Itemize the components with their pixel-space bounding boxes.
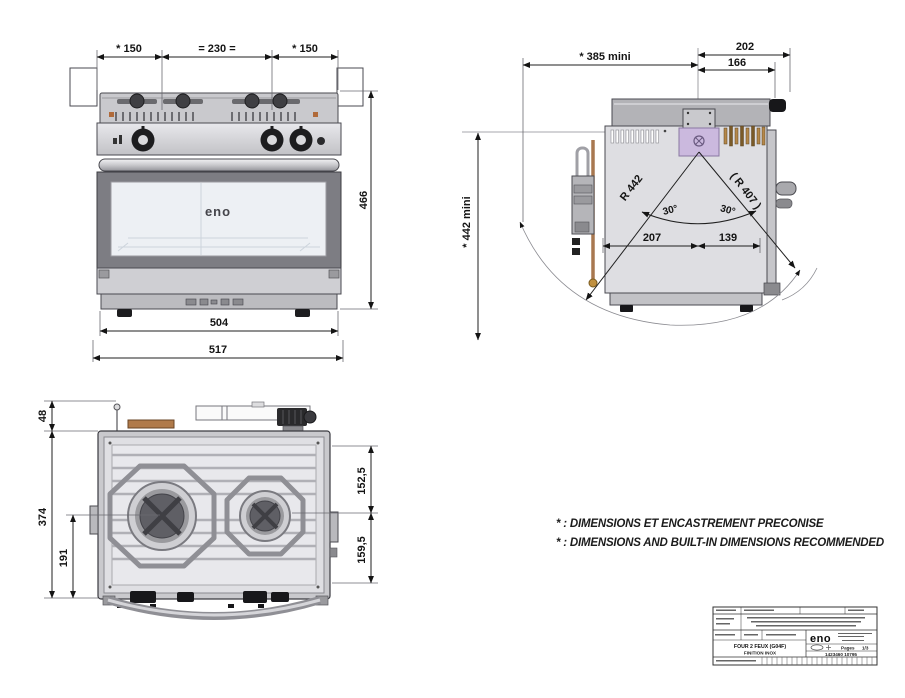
title-block-brand-logo: eno: [810, 633, 831, 645]
side-cylinder-fitting: [776, 182, 796, 195]
swing-arc-rear: [782, 268, 817, 300]
title-block: FOUR 2 FEUX (G04F) FINITION INOX eno Pag…: [713, 607, 877, 665]
technical-drawing-page: eno * 150 = 230 = * 150 466: [0, 0, 905, 698]
dim-517: 517: [209, 344, 227, 356]
copper-manifold: [128, 420, 174, 428]
front-lower-panel: [97, 268, 341, 294]
burner-small: [240, 491, 290, 541]
igniter-button: [317, 137, 325, 145]
dim-230: = 230 =: [198, 43, 235, 55]
gas-regulator: [277, 408, 316, 433]
dim-166: 166: [728, 57, 746, 69]
side-knob: [769, 99, 786, 112]
dim-466: 466: [358, 191, 370, 209]
front-grate-clip-right: [313, 112, 318, 117]
top-left-tab: [90, 506, 98, 534]
side-view: R 442 ( R 407 ) 30° 30° 207 139 * 385 mi…: [461, 41, 817, 340]
dim-374: 374: [37, 507, 49, 526]
dim-504: 504: [210, 317, 229, 329]
side-right-rail: [767, 130, 776, 288]
top-view: 48 374 191 152,5 159,5: [37, 401, 378, 616]
front-base: [101, 294, 337, 309]
title-block-pages-value: 1/3: [862, 646, 869, 651]
oven-door-window: [111, 182, 326, 256]
dim-442-mini: * 442 mini: [461, 196, 473, 247]
front-foot-right: [295, 309, 310, 317]
note-french: * : DIMENSIONS ET ENCASTREMENT PRECONISE: [556, 518, 824, 530]
thermocouple: [114, 404, 120, 410]
top-right-tab: [330, 512, 338, 542]
title-block-product-line1: FOUR 2 FEUX (G04F): [734, 644, 786, 650]
dim-right-150: * 150: [292, 43, 318, 55]
base-vents: [186, 299, 243, 305]
dim-207: 207: [643, 232, 661, 244]
dim-152-5: 152,5: [356, 467, 368, 495]
front-view: eno * 150 = 230 = * 150 466: [70, 43, 378, 362]
title-block-product-line2: FINITION INOX: [744, 651, 777, 656]
dim-385-mini: * 385 mini: [579, 51, 630, 63]
front-foot-left: [117, 309, 132, 317]
side-base: [610, 293, 762, 305]
front-right-rail: [337, 68, 363, 106]
brass-fitting: [589, 279, 597, 287]
dim-left-150: * 150: [116, 43, 142, 55]
front-grate-clip-left: [109, 112, 114, 117]
door-logo: eno: [205, 204, 231, 219]
dim-191: 191: [58, 549, 70, 567]
dim-202: 202: [736, 41, 754, 53]
notes: * : DIMENSIONS ET ENCASTREMENT PRECONISE…: [556, 518, 884, 549]
dim-159-5: 159,5: [356, 536, 368, 564]
oven-door-handle: [99, 159, 339, 171]
gimbal-bracket: [679, 128, 719, 156]
note-english: * : DIMENSIONS AND BUILT-IN DIMENSIONS R…: [556, 537, 884, 549]
dim-139: 139: [719, 232, 737, 244]
dim-48: 48: [37, 410, 49, 422]
front-left-rail: [70, 68, 97, 106]
title-block-pages-label: Pages: [841, 646, 855, 651]
burner-large: [128, 482, 196, 550]
drawing-svg: eno * 150 = 230 = * 150 466: [0, 0, 905, 698]
title-block-part-number: 1423460 10795: [825, 652, 857, 657]
